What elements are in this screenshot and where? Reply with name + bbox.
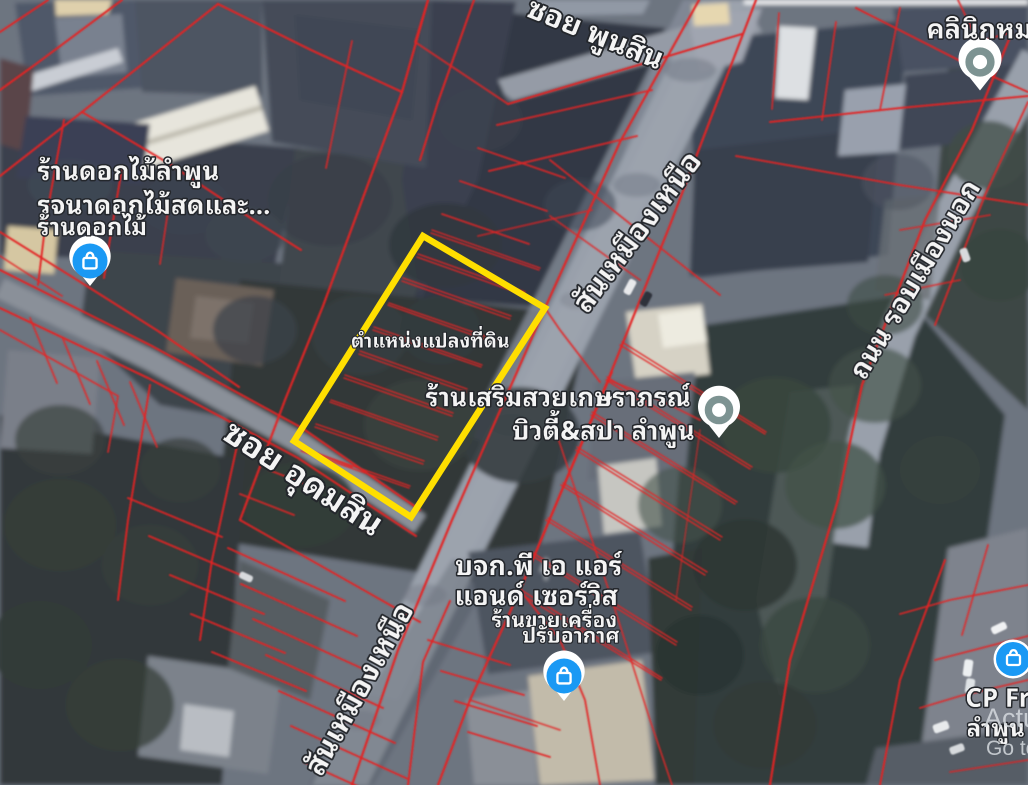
svg-text:Go to: Go to	[986, 737, 1028, 760]
svg-text:Actu: Actu	[984, 703, 1028, 733]
